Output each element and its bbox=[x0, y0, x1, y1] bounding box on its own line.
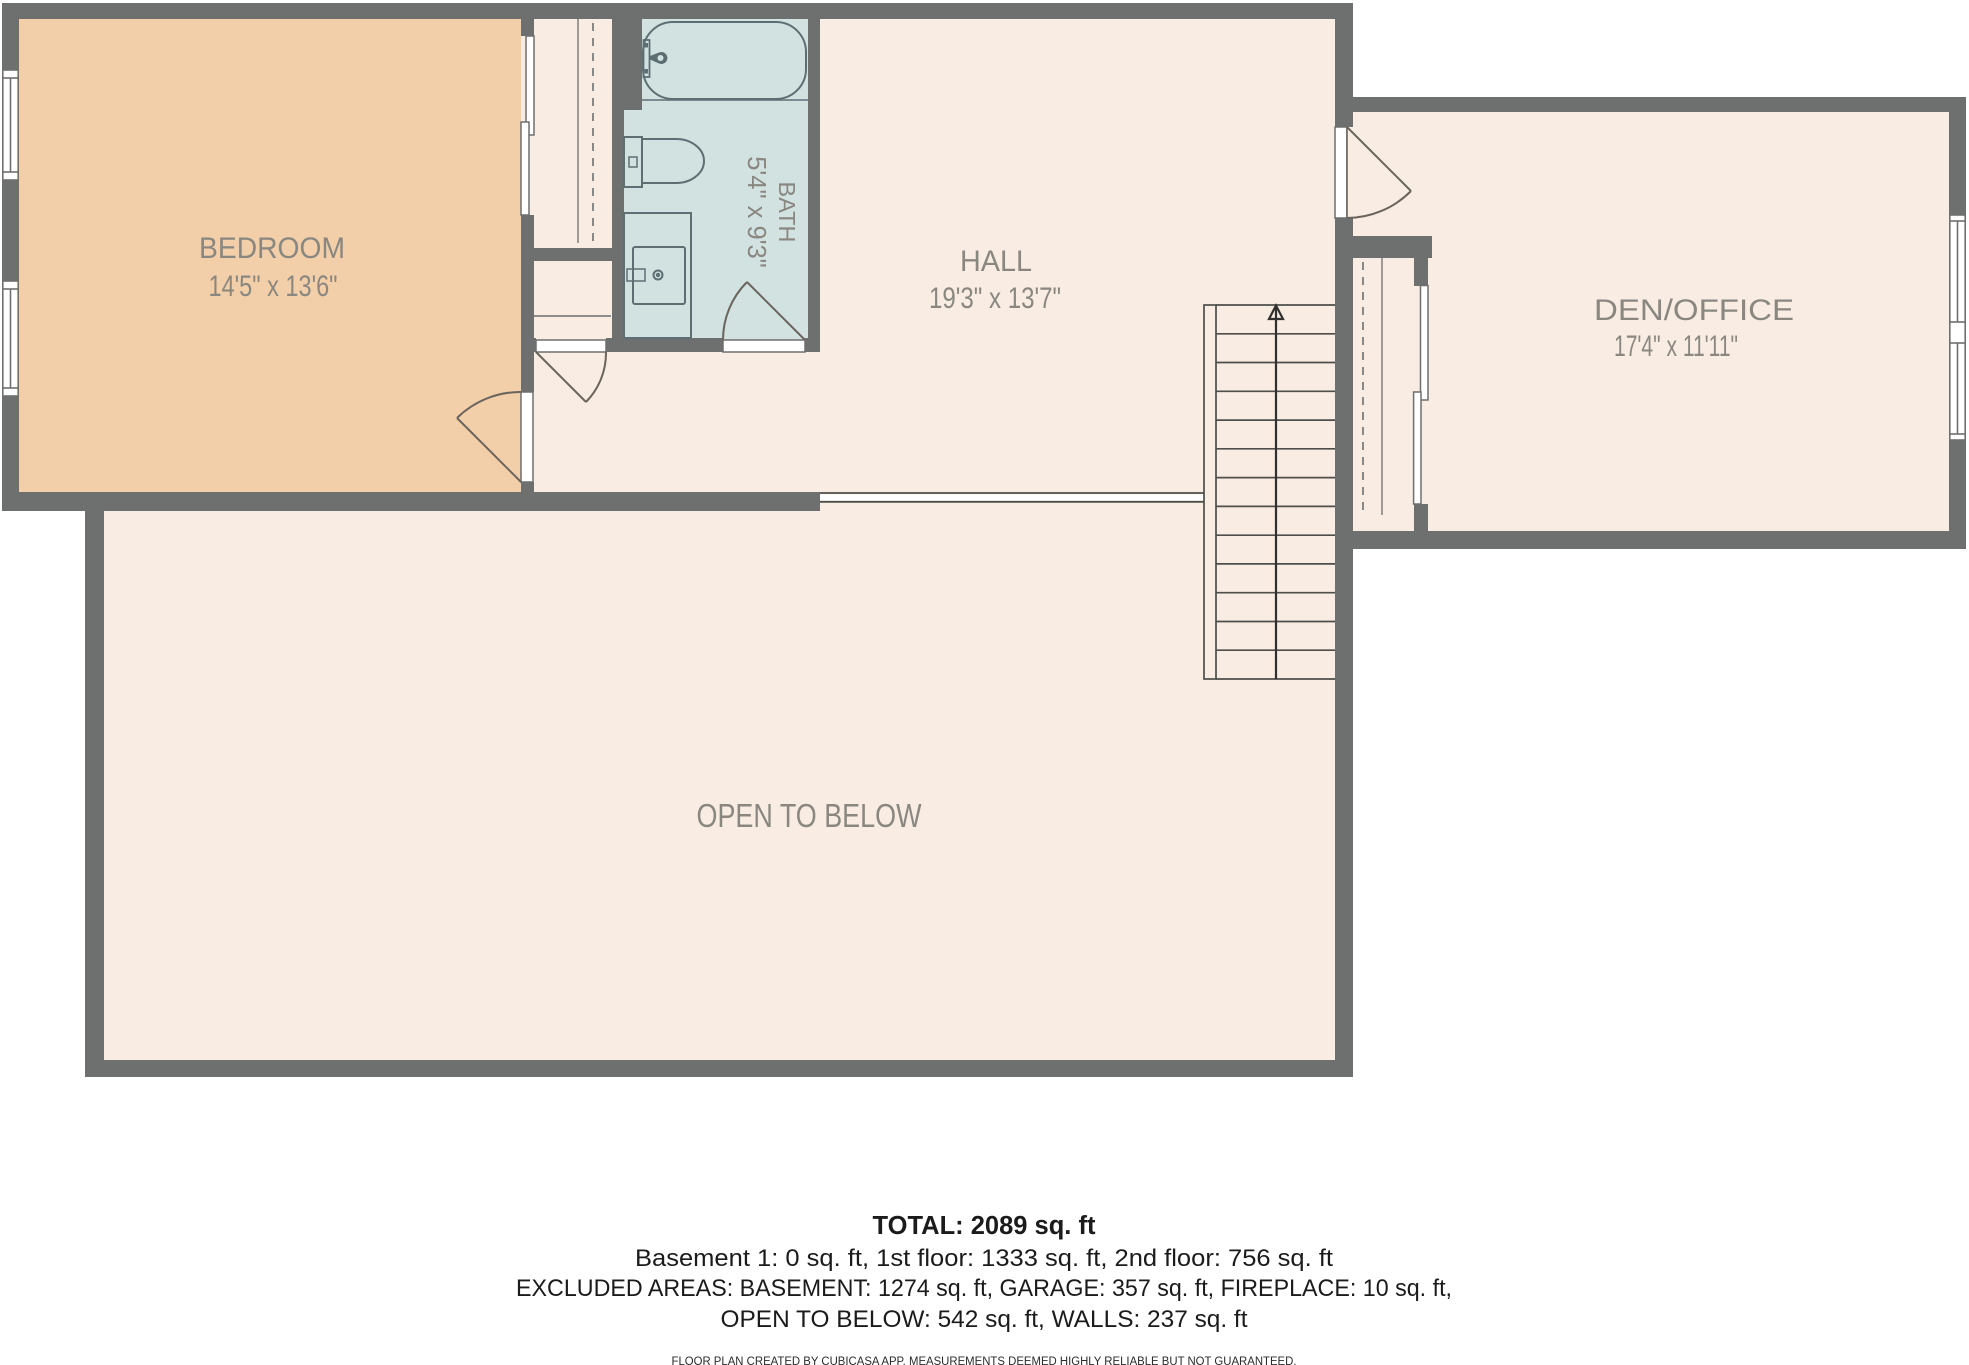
svg-text:Basement 1: 0 sq. ft, 1st floo: Basement 1: 0 sq. ft, 1st floor: 1333 sq… bbox=[635, 1245, 1333, 1272]
svg-text:19'3" x 13'7": 19'3" x 13'7" bbox=[929, 282, 1061, 315]
svg-text:BEDROOM: BEDROOM bbox=[199, 232, 345, 265]
svg-text:FLOOR PLAN CREATED BY CUBICASA: FLOOR PLAN CREATED BY CUBICASA APP. MEAS… bbox=[672, 1356, 1297, 1365]
svg-text:HALL: HALL bbox=[960, 245, 1032, 278]
svg-text:EXCLUDED AREAS: BASEMENT: 1274: EXCLUDED AREAS: BASEMENT: 1274 sq. ft, G… bbox=[516, 1275, 1452, 1302]
svg-text:17'4" x 11'11": 17'4" x 11'11" bbox=[1614, 330, 1738, 363]
svg-text:BATH: BATH bbox=[774, 182, 800, 243]
svg-text:OPEN TO BELOW: 542 sq. ft, WAL: OPEN TO BELOW: 542 sq. ft, WALLS: 237 sq… bbox=[721, 1306, 1248, 1333]
svg-text:DEN/OFFICE: DEN/OFFICE bbox=[1594, 294, 1794, 327]
svg-text:14'5" x 13'6": 14'5" x 13'6" bbox=[209, 270, 338, 303]
svg-text:OPEN TO BELOW: OPEN TO BELOW bbox=[697, 797, 923, 834]
svg-text:5'4" x 9'3": 5'4" x 9'3" bbox=[742, 156, 770, 268]
svg-text:TOTAL: 2089 sq. ft: TOTAL: 2089 sq. ft bbox=[873, 1212, 1096, 1240]
